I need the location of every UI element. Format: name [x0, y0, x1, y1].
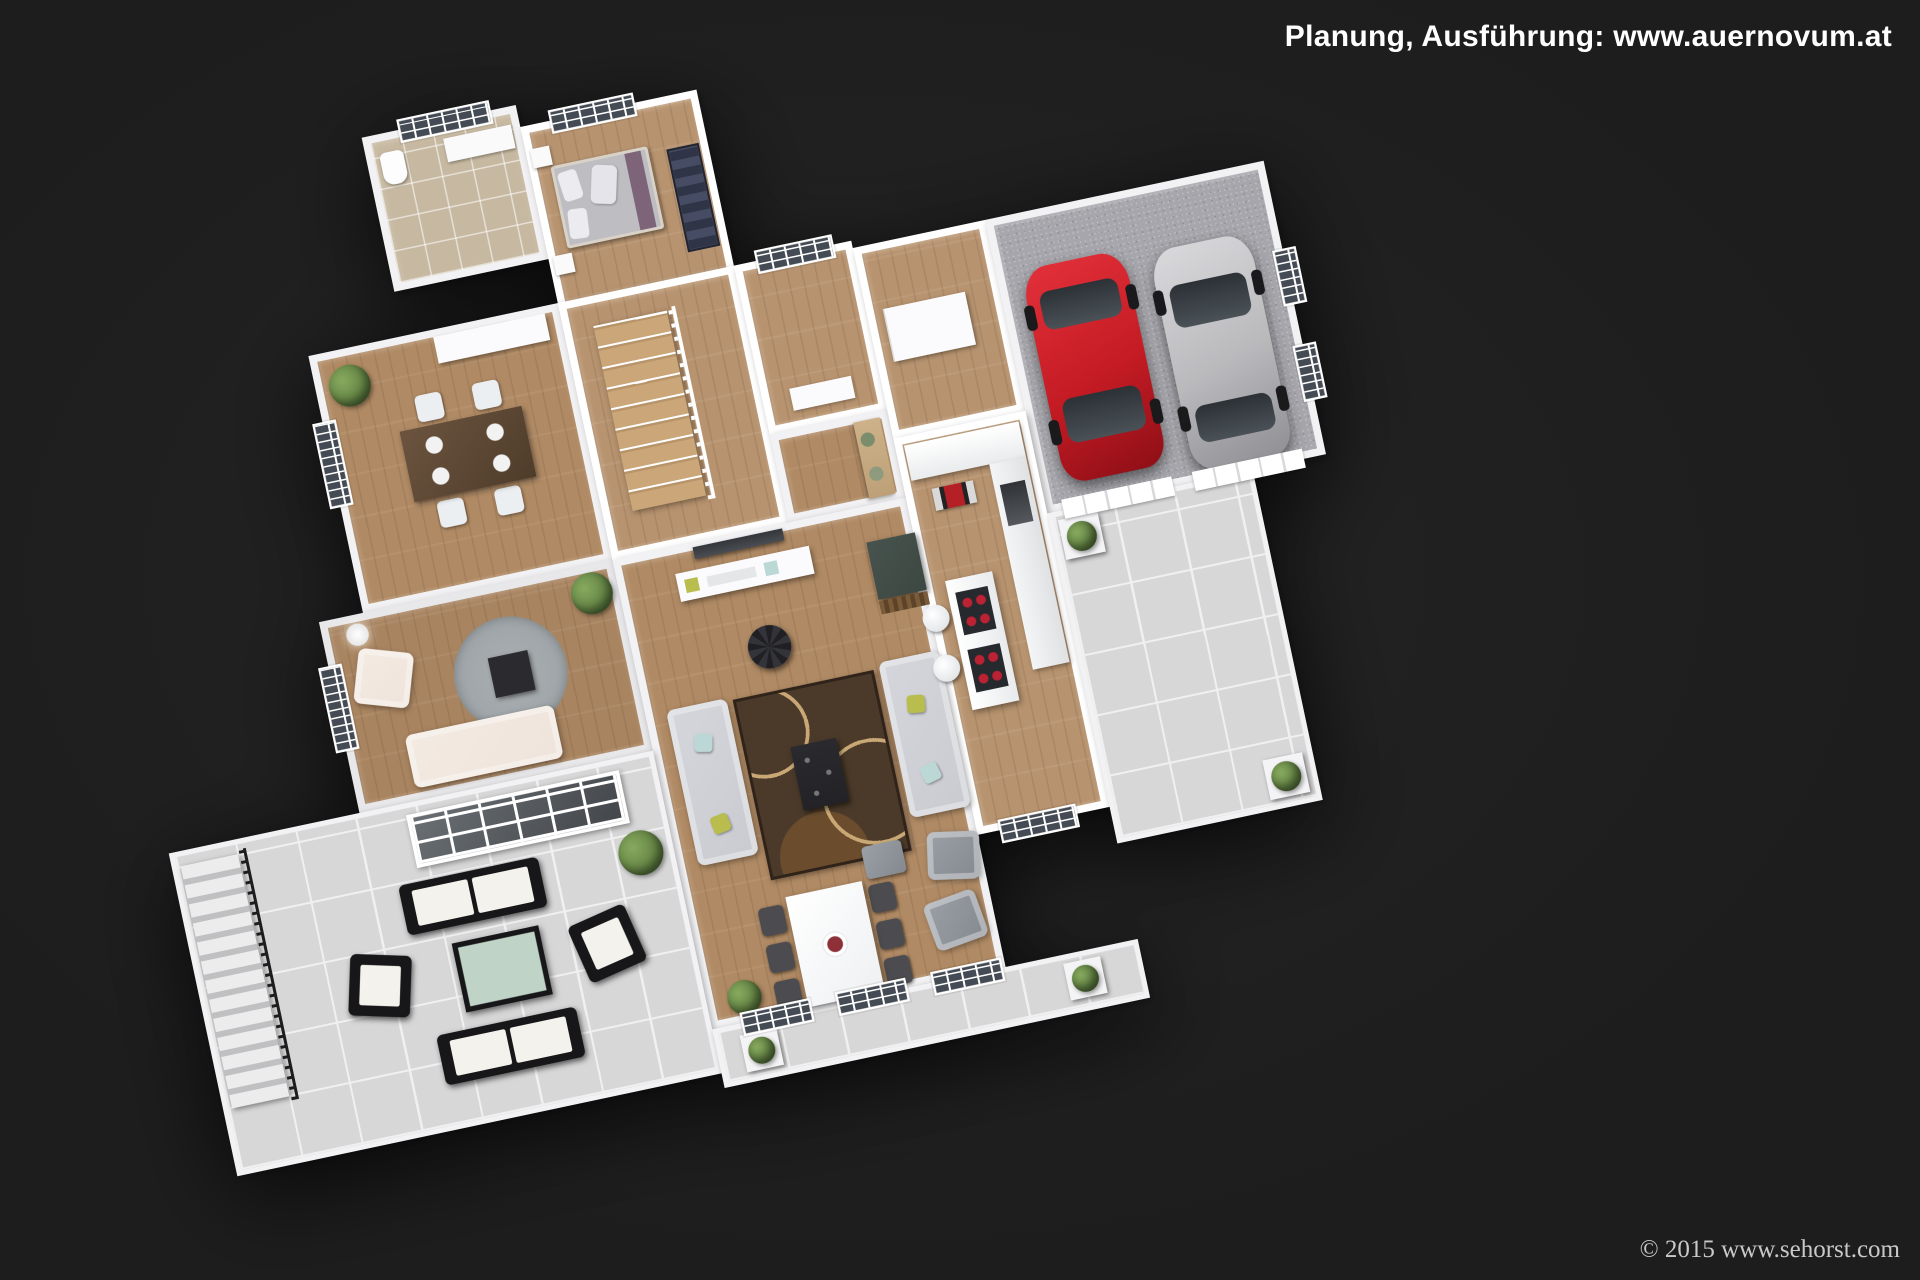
planter-box — [1058, 512, 1106, 560]
patio-cushion — [411, 879, 474, 926]
console-accent-lime — [684, 577, 700, 593]
planner-credit-watermark: Planung, Ausführung: www.auernovum.at — [1285, 20, 1892, 54]
shrub — [1064, 518, 1100, 554]
planter-box — [1063, 956, 1107, 1000]
pillow — [556, 168, 584, 203]
bathroom — [362, 105, 549, 292]
dining-chair — [414, 391, 446, 423]
patio-cushion — [581, 917, 634, 970]
fruit-bowl — [820, 929, 850, 959]
rendered-floor-plan-image: { "image": { "type": "3d-floor-plan-rend… — [0, 0, 1920, 1280]
shrub — [1069, 962, 1101, 994]
car-windshield — [1168, 271, 1253, 330]
console-accent-teal — [763, 560, 779, 576]
gray-armchair — [926, 830, 980, 880]
copyright-watermark: © 2015 www.sehorst.com — [1640, 1236, 1900, 1264]
car-rear-window — [1194, 391, 1278, 444]
patio-cushion — [449, 1029, 512, 1076]
pillow — [567, 207, 590, 239]
car-windshield — [1061, 384, 1148, 445]
teal-cushion — [694, 734, 712, 752]
cooktop — [955, 586, 996, 635]
patio-armchair — [348, 954, 412, 1018]
teal-cushion — [919, 761, 943, 785]
patio-cushion — [509, 1016, 572, 1063]
nightstand — [530, 145, 553, 168]
dining-chair — [471, 379, 503, 411]
lounge-coffee-table — [488, 650, 536, 698]
console-drawer — [706, 566, 757, 587]
car-rear-window — [1038, 276, 1124, 331]
cooktop — [967, 643, 1008, 692]
planter-box — [1262, 752, 1310, 800]
shrub — [1269, 758, 1305, 794]
lounge-armchair — [353, 648, 414, 709]
patio-cushion — [471, 866, 534, 913]
house-plan — [28, 0, 1511, 1235]
patio-cushion — [359, 965, 401, 1007]
dining-chair — [493, 484, 525, 516]
shrub — [746, 1034, 778, 1066]
blanket — [590, 164, 617, 204]
wall-oven — [1000, 480, 1034, 526]
lime-cushion — [709, 812, 732, 835]
dining-chair — [436, 497, 468, 529]
lime-cushion — [906, 694, 925, 713]
nightstand — [553, 253, 576, 276]
